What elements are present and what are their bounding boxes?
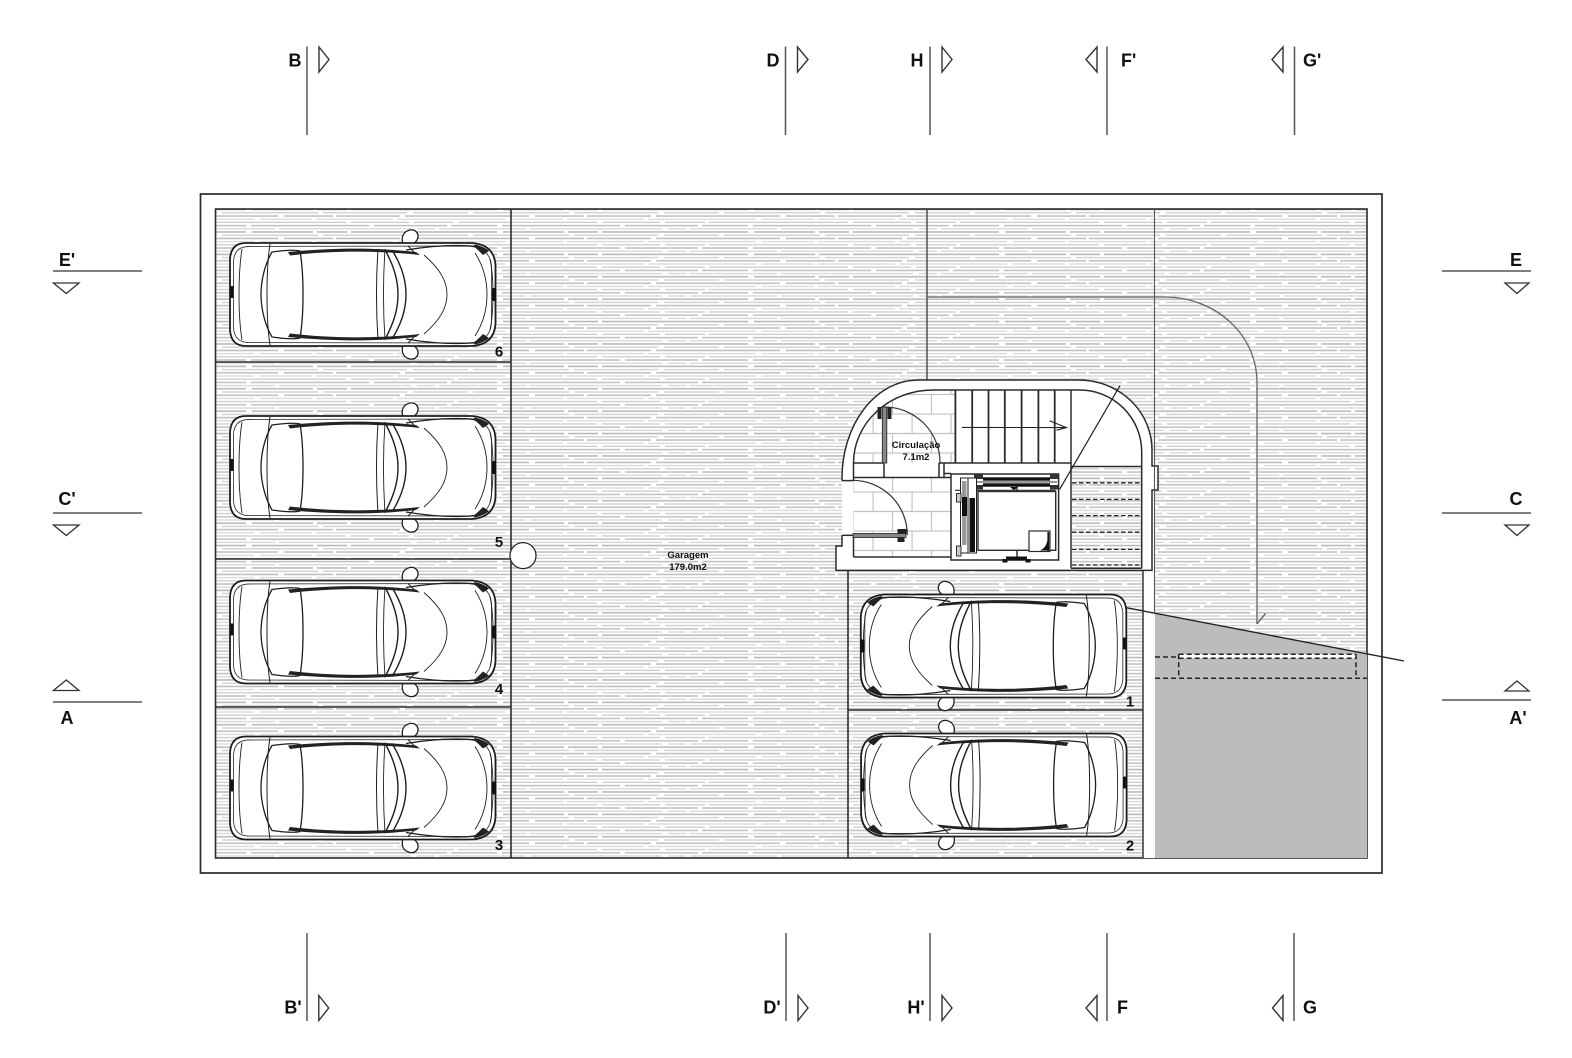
- svg-text:A: A: [61, 708, 74, 728]
- svg-text:A': A': [1509, 708, 1526, 728]
- svg-text:7.1m2: 7.1m2: [903, 452, 930, 463]
- svg-text:H': H': [907, 998, 924, 1018]
- svg-text:2: 2: [1126, 837, 1134, 854]
- svg-text:Circulação: Circulação: [892, 440, 941, 451]
- svg-text:D': D': [763, 998, 780, 1018]
- svg-text:G': G': [1303, 51, 1321, 71]
- svg-text:D: D: [767, 51, 780, 71]
- svg-text:E': E': [59, 250, 75, 270]
- svg-text:4: 4: [495, 681, 504, 698]
- svg-text:5: 5: [495, 534, 503, 551]
- svg-text:F: F: [1117, 998, 1128, 1018]
- svg-text:Garagem: Garagem: [667, 550, 708, 561]
- svg-text:3: 3: [495, 837, 503, 854]
- svg-text:6: 6: [495, 343, 503, 360]
- svg-text:E: E: [1510, 250, 1522, 270]
- svg-text:C: C: [1510, 489, 1523, 509]
- svg-text:G: G: [1303, 998, 1317, 1018]
- svg-text:B': B': [284, 998, 301, 1018]
- svg-text:C': C': [58, 489, 75, 509]
- svg-text:F': F': [1121, 51, 1136, 71]
- svg-text:H: H: [911, 51, 924, 71]
- svg-text:B: B: [289, 51, 302, 71]
- svg-text:1: 1: [1126, 694, 1134, 711]
- svg-text:179.0m2: 179.0m2: [669, 562, 707, 573]
